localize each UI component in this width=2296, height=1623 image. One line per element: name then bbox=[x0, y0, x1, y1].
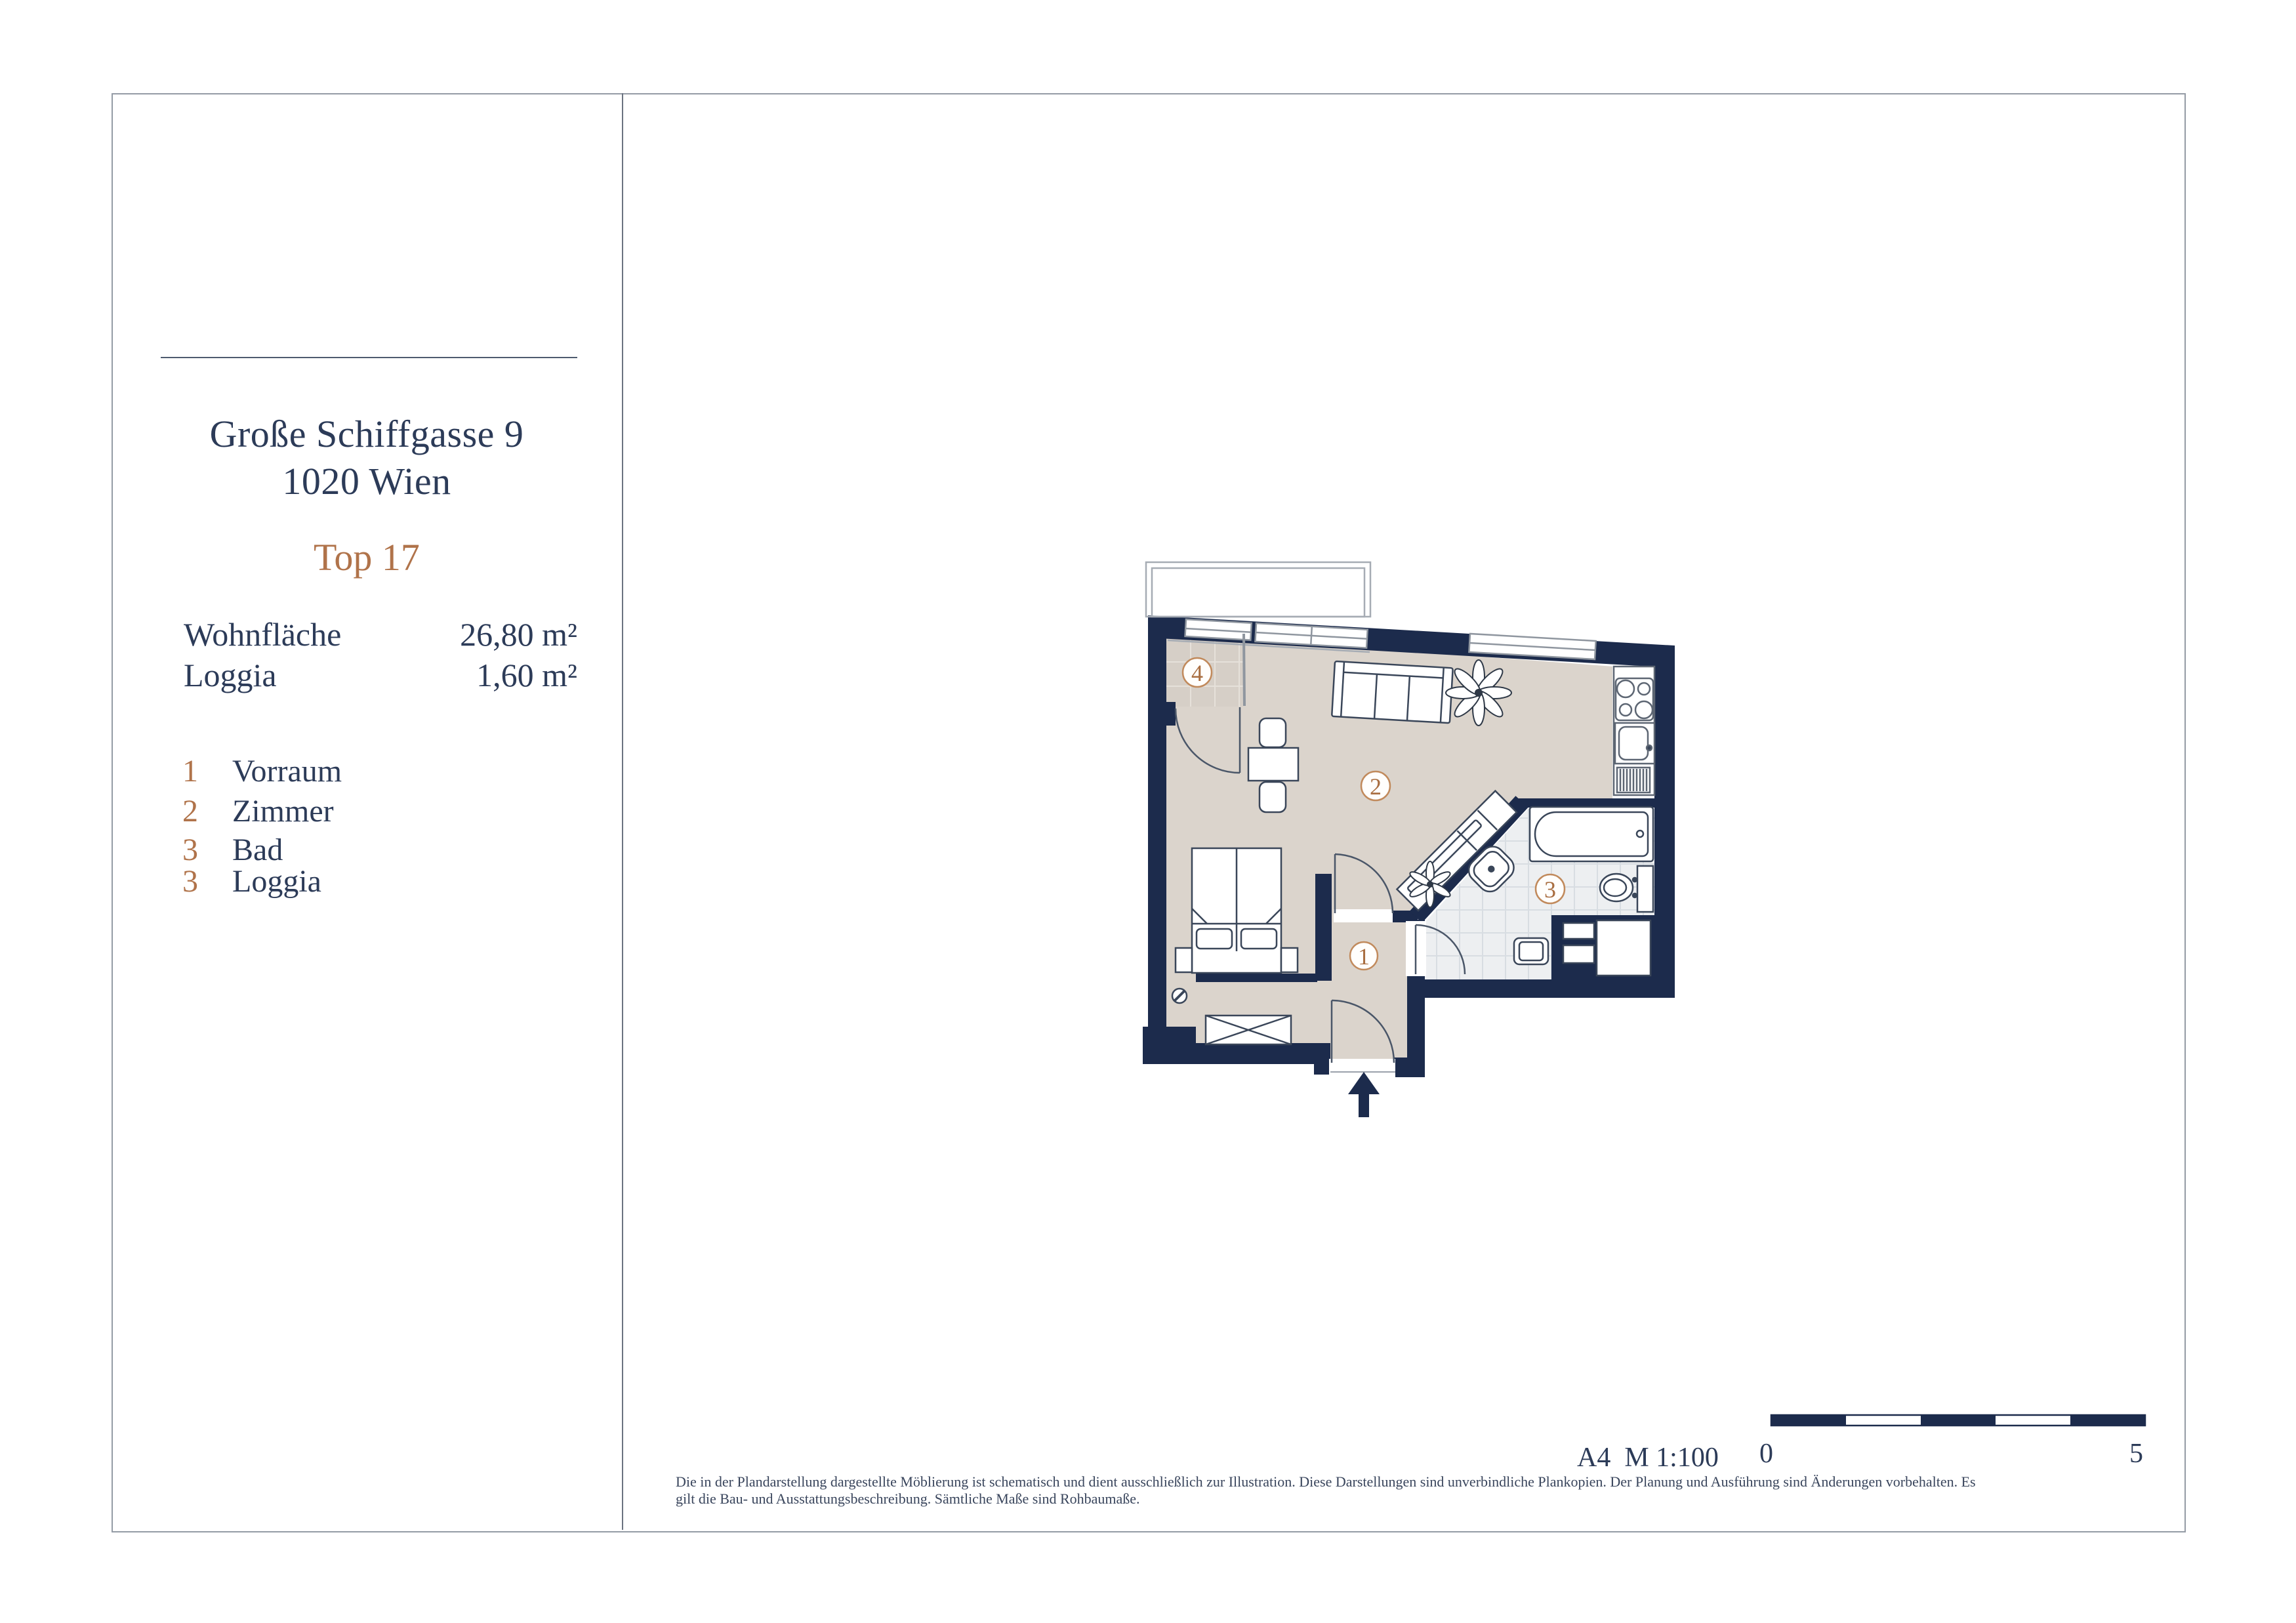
kitchen-drawers bbox=[1617, 768, 1650, 792]
svg-text:1: 1 bbox=[1358, 943, 1370, 970]
dining-table bbox=[1248, 748, 1298, 781]
kitchen-sink bbox=[1615, 723, 1654, 764]
door-stop-icon bbox=[1172, 989, 1187, 1003]
plant-icon bbox=[1446, 660, 1511, 726]
floor-plan: 1 2 3 4 bbox=[0, 0, 2296, 1623]
svg-text:2: 2 bbox=[1370, 773, 1382, 800]
room-label-4: 4 bbox=[1183, 658, 1212, 687]
kitchen-counter bbox=[1614, 667, 1654, 795]
kitchen-stove bbox=[1616, 678, 1653, 720]
wardrobe bbox=[1206, 1016, 1291, 1044]
sofa bbox=[1332, 661, 1453, 723]
plan-sheet: Große Schiffgasse 9 1020 Wien Top 17 Woh… bbox=[0, 0, 2296, 1623]
room-label-2: 2 bbox=[1361, 771, 1390, 800]
nightstand bbox=[1176, 948, 1192, 972]
room-label-1: 1 bbox=[1350, 942, 1378, 970]
scale-bar bbox=[1771, 1415, 2145, 1426]
chair bbox=[1260, 782, 1286, 812]
nightstand bbox=[1281, 948, 1298, 972]
bathtub bbox=[1530, 807, 1653, 861]
room-label-3: 3 bbox=[1536, 874, 1565, 903]
svg-text:4: 4 bbox=[1191, 660, 1203, 686]
bed bbox=[1176, 848, 1298, 973]
chair bbox=[1260, 718, 1286, 747]
loggia-glass bbox=[1244, 634, 1244, 706]
svg-text:3: 3 bbox=[1544, 876, 1556, 903]
window bbox=[1185, 619, 1252, 640]
vorraum-floor bbox=[1330, 911, 1407, 1063]
entrance-arrow-icon bbox=[1348, 1072, 1380, 1117]
